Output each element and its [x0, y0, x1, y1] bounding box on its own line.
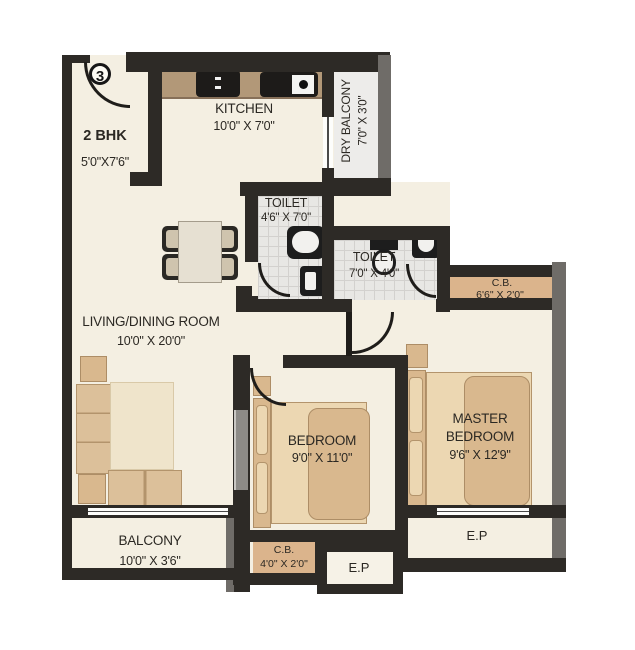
dry-balcony-dims: 7'0" X 3'0"	[357, 66, 370, 176]
entry-dims-label: 5'0"X7'6"	[66, 155, 144, 169]
balcony-dims: 10'0" X 3'6"	[80, 554, 220, 568]
dining-table	[178, 221, 222, 283]
bedroom-label: BEDROOM	[262, 433, 382, 449]
wall-segment	[62, 568, 238, 580]
corner-table	[78, 474, 106, 504]
window	[88, 508, 228, 515]
floor-plan: 3 2 BHK 5'0"X7'6" KITCHEN 10'0" X 7'0" D…	[0, 0, 635, 650]
kitchen-dims: 10'0" X 7'0"	[184, 119, 304, 133]
toilet1-label: TOILET	[246, 196, 326, 210]
cupboard-bottom-label: C.B.	[244, 544, 324, 556]
sofa-two-seater	[108, 470, 182, 506]
wall-segment	[130, 172, 162, 186]
dry-balcony-label: DRY BALCONY	[340, 66, 354, 176]
pillow	[409, 377, 423, 433]
toilet1-dims: 4'6" X 7'0"	[246, 212, 326, 225]
wall-segment	[233, 573, 327, 585]
ep-bottom-label: E.P	[319, 561, 399, 576]
toilet2-dims: 7'0" X 4'0"	[334, 268, 414, 281]
unit-number-badge: 3	[89, 63, 111, 85]
ep-right-label: E.P	[417, 529, 537, 544]
stove-icon	[196, 70, 240, 97]
wall-segment	[245, 299, 352, 312]
sofa-long	[76, 384, 112, 474]
sliding-panel	[234, 410, 248, 490]
master-bedroom-dims: 9'6" X 12'9"	[420, 448, 540, 462]
rug	[110, 382, 174, 470]
wall-segment	[378, 55, 391, 190]
master-bedroom-label: MASTER BEDROOM	[430, 410, 530, 445]
window	[437, 508, 529, 515]
pillow	[256, 462, 268, 514]
living-dining-dims: 10'0" X 20'0"	[71, 334, 231, 348]
nightstand	[406, 344, 428, 368]
cupboard-top-dims: 6'6" X 2'0"	[450, 289, 550, 301]
wall-segment	[283, 355, 397, 368]
cupboard-top-label: C.B.	[452, 277, 552, 289]
wall-segment	[322, 226, 450, 240]
wall-segment	[395, 558, 566, 572]
toilet2-label: TOILET	[334, 250, 414, 264]
wall-segment	[148, 55, 162, 178]
wall-segment	[322, 62, 334, 117]
wall-segment	[443, 265, 450, 310]
kitchen-label: KITCHEN	[184, 101, 304, 117]
living-dining-label: LIVING/DINING ROOM	[71, 314, 231, 330]
window	[323, 117, 333, 168]
wall-segment	[236, 286, 252, 312]
unit-type-label: 2 BHK	[69, 128, 141, 145]
bedroom-dims: 9'0" X 11'0"	[262, 451, 382, 465]
wall-segment	[552, 262, 566, 572]
balcony-label: BALCONY	[80, 533, 220, 549]
bath-counter-icon	[287, 226, 325, 259]
wall-segment	[240, 182, 334, 196]
side-table	[80, 356, 107, 382]
sink-basin-icon	[292, 75, 314, 94]
wall-segment	[443, 265, 556, 277]
